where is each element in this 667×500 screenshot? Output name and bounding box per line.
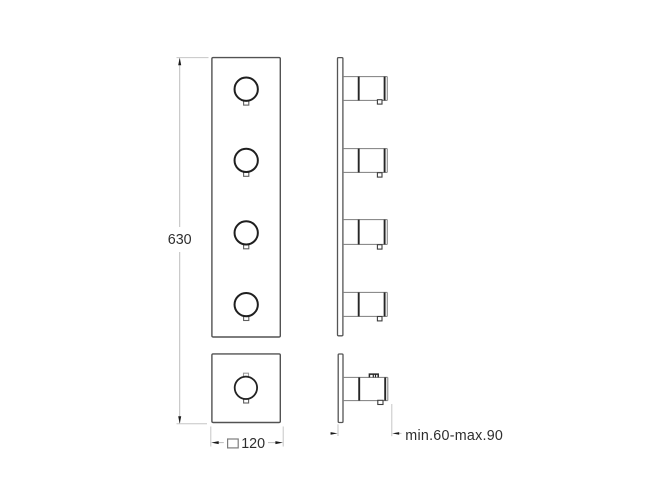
svg-text:630: 630 [168, 232, 192, 248]
svg-text:min.60-max.90: min.60-max.90 [405, 428, 503, 444]
svg-text:120: 120 [241, 436, 265, 452]
